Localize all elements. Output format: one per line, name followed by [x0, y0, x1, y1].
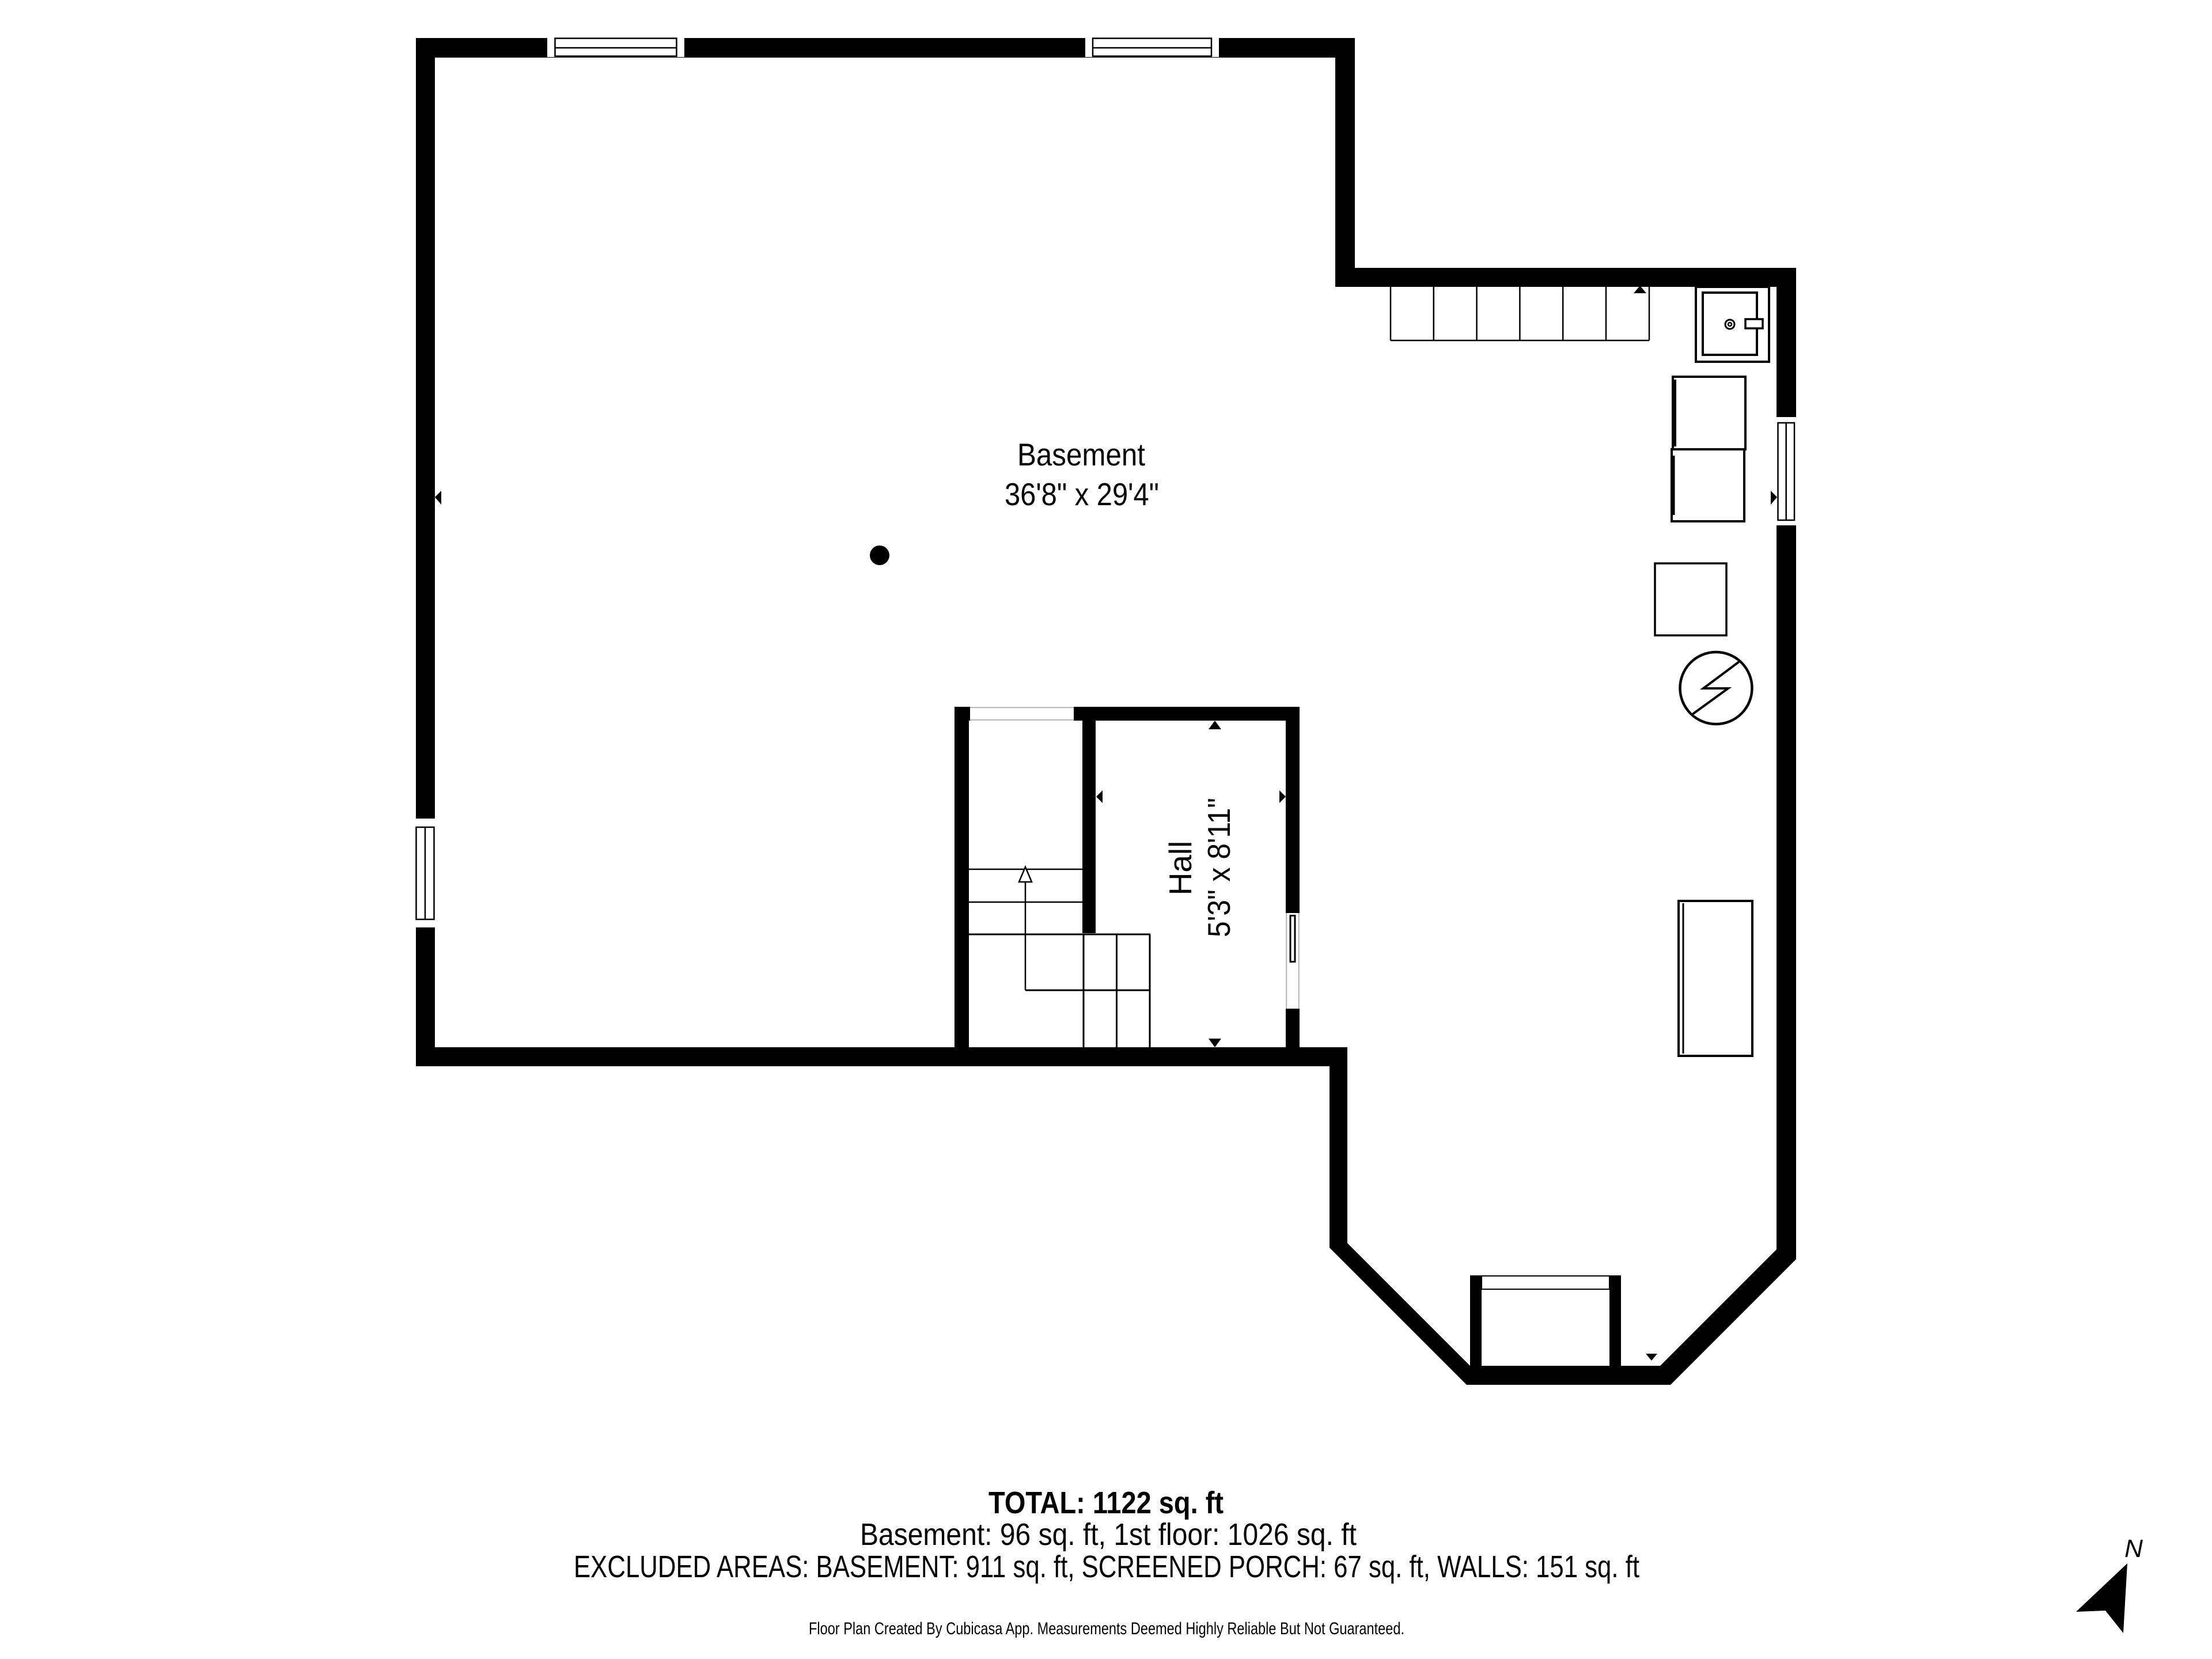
svg-text:Basement: Basement: [1017, 437, 1145, 472]
svg-text:EXCLUDED AREAS: BASEMENT: 911: EXCLUDED AREAS: BASEMENT: 911 sq. ft, SC…: [574, 1550, 1639, 1584]
svg-text:Floor Plan Created By Cubicasa: Floor Plan Created By Cubicasa App. Meas…: [809, 1619, 1404, 1638]
svg-text:5'3" x 8'11": 5'3" x 8'11": [1201, 798, 1237, 937]
svg-text:Hall: Hall: [1162, 841, 1198, 896]
svg-text:TOTAL: 1122 sq. ft: TOTAL: 1122 sq. ft: [988, 1486, 1224, 1520]
svg-text:Basement: 96 sq. ft, 1st floor: Basement: 96 sq. ft, 1st floor: 1026 sq.…: [860, 1517, 1357, 1552]
svg-text:N: N: [2124, 1535, 2143, 1563]
svg-text:36'8" x 29'4": 36'8" x 29'4": [1005, 476, 1159, 512]
